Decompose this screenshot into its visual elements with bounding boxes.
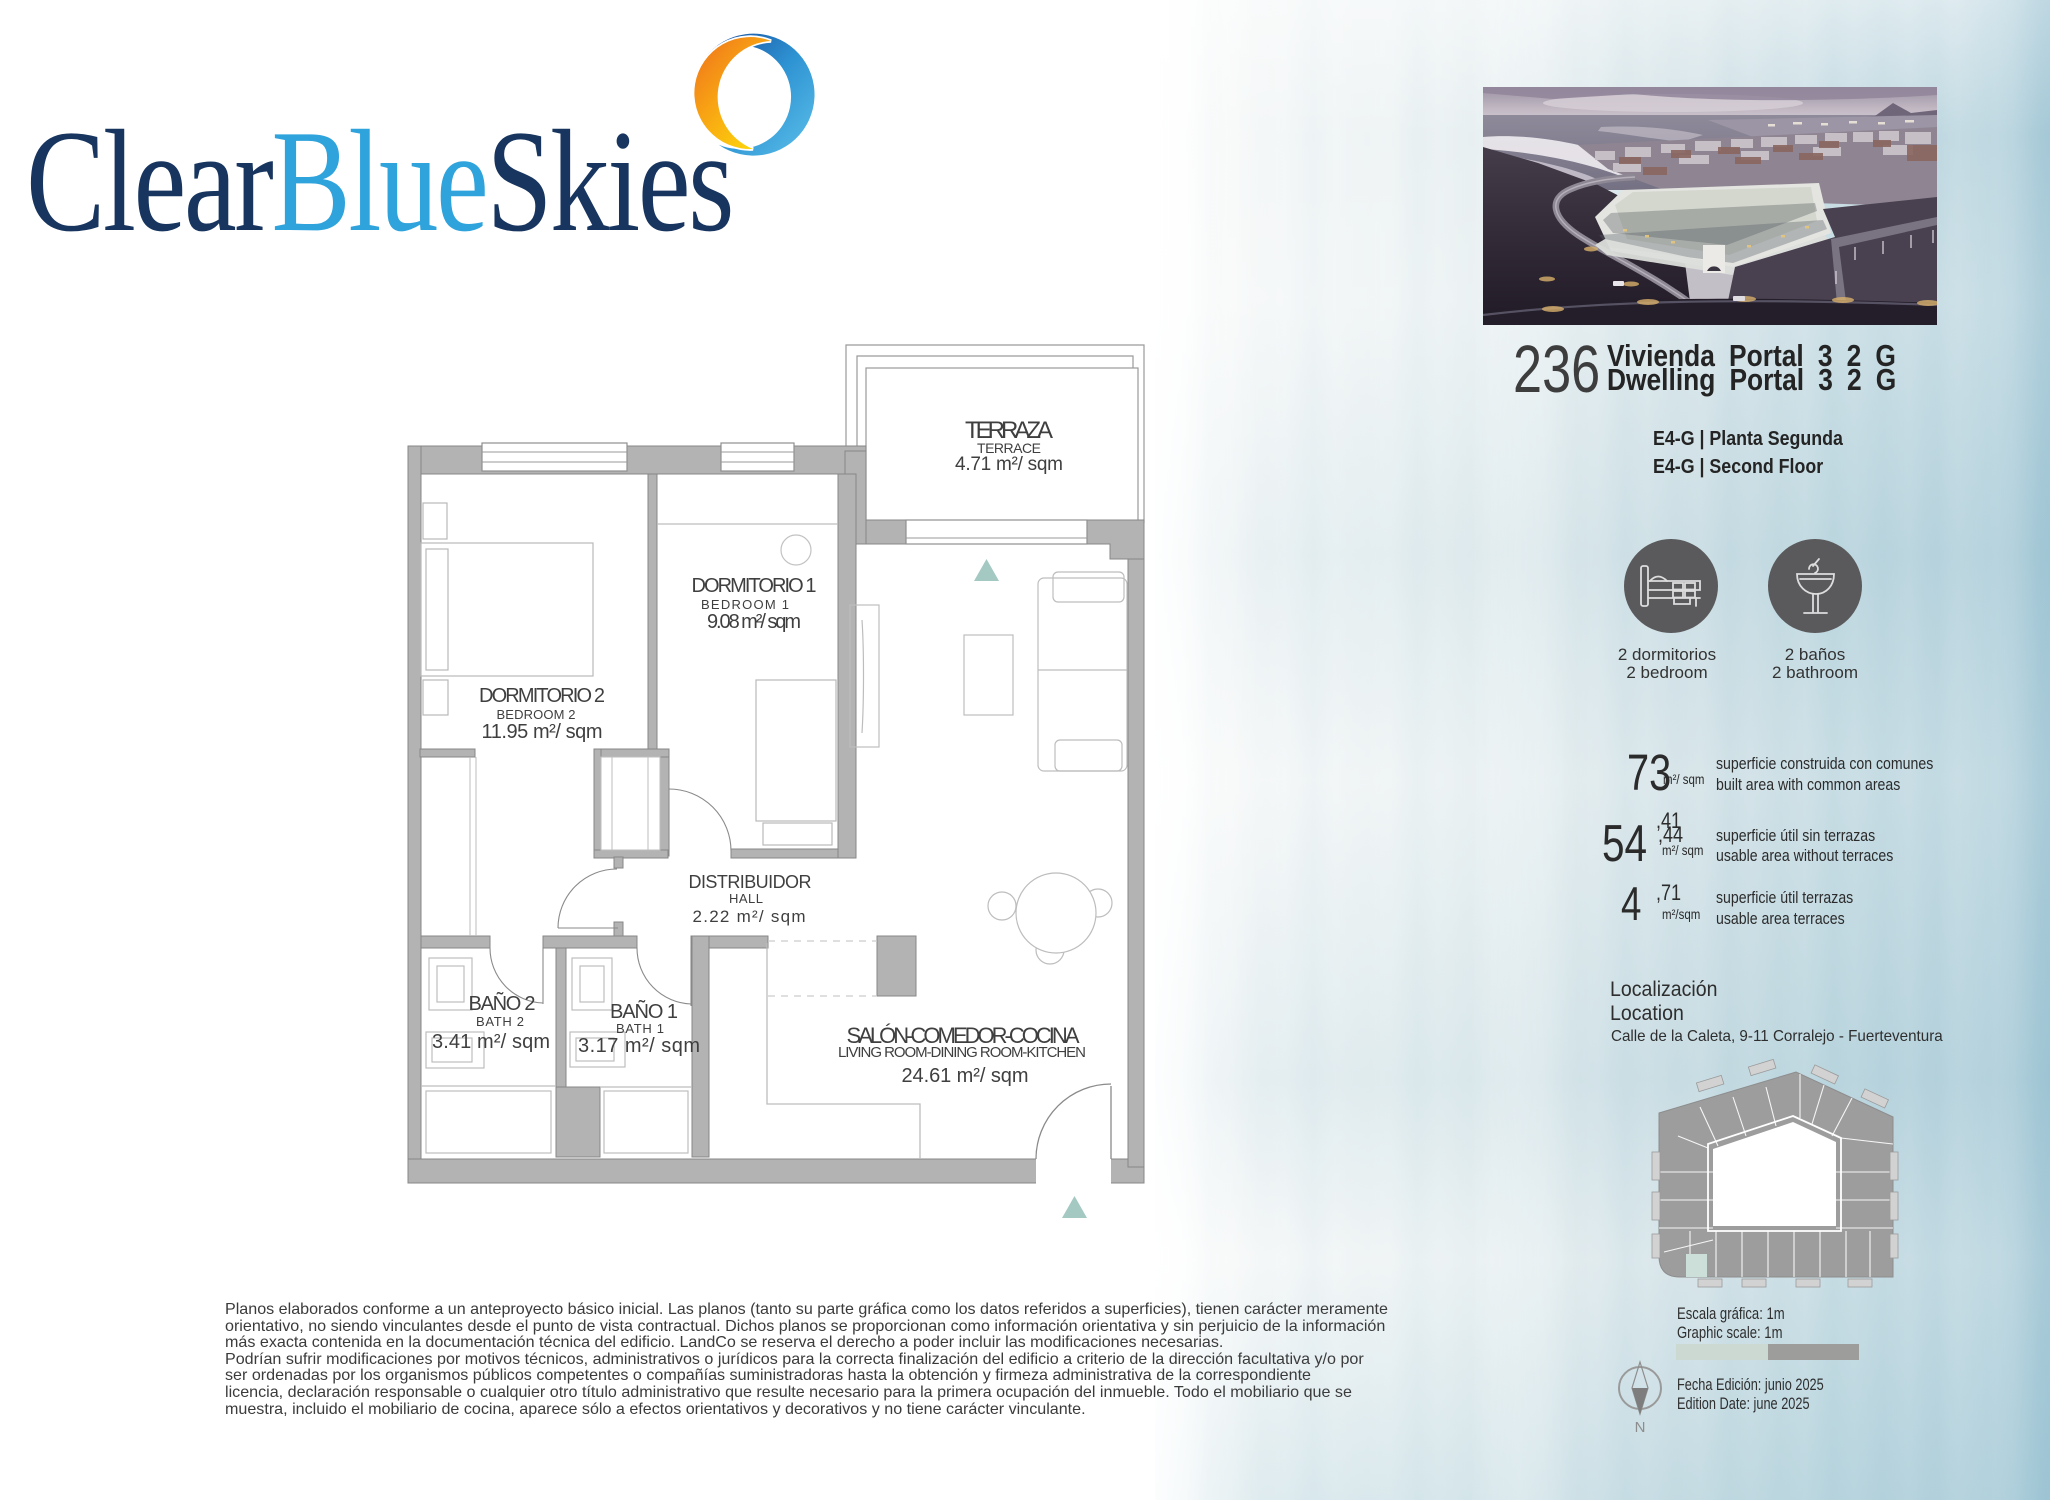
- svg-text:BATH 1: BATH 1: [616, 1021, 664, 1036]
- svg-text:DORMITORIO 1: DORMITORIO 1: [692, 575, 817, 597]
- svg-text:BATH 2: BATH 2: [476, 1014, 524, 1029]
- svg-text:BAÑO 2: BAÑO 2: [469, 991, 536, 1015]
- svg-text:DORMITORIO 2: DORMITORIO 2: [479, 685, 605, 707]
- svg-text:24.61 m²/ sqm: 24.61 m²/ sqm: [902, 1065, 1029, 1087]
- svg-text:BEDROOM 2: BEDROOM 2: [497, 707, 576, 722]
- svg-text:N: N: [1635, 1419, 1646, 1436]
- svg-text:3.41 m²/ sqm: 3.41 m²/ sqm: [432, 1031, 550, 1053]
- svg-text:LIVING ROOM-DINING ROOM-KITCHE: LIVING ROOM-DINING ROOM-KITCHEN: [838, 1044, 1086, 1061]
- svg-text:11.95 m²/ sqm: 11.95 m²/ sqm: [482, 721, 603, 743]
- svg-text:3.17 m²/ sqm: 3.17 m²/ sqm: [578, 1035, 700, 1057]
- svg-text:2.22 m²/ sqm: 2.22 m²/ sqm: [693, 907, 806, 926]
- svg-text:4.71 m²/ sqm: 4.71 m²/ sqm: [955, 454, 1063, 475]
- svg-text:HALL: HALL: [729, 891, 763, 906]
- svg-text:BEDROOM 1: BEDROOM 1: [701, 597, 789, 612]
- svg-text:9.08 m²/ sqm: 9.08 m²/ sqm: [707, 611, 801, 633]
- svg-text:DISTRIBUIDOR: DISTRIBUIDOR: [689, 872, 812, 892]
- svg-text:BAÑO 1: BAÑO 1: [610, 999, 678, 1023]
